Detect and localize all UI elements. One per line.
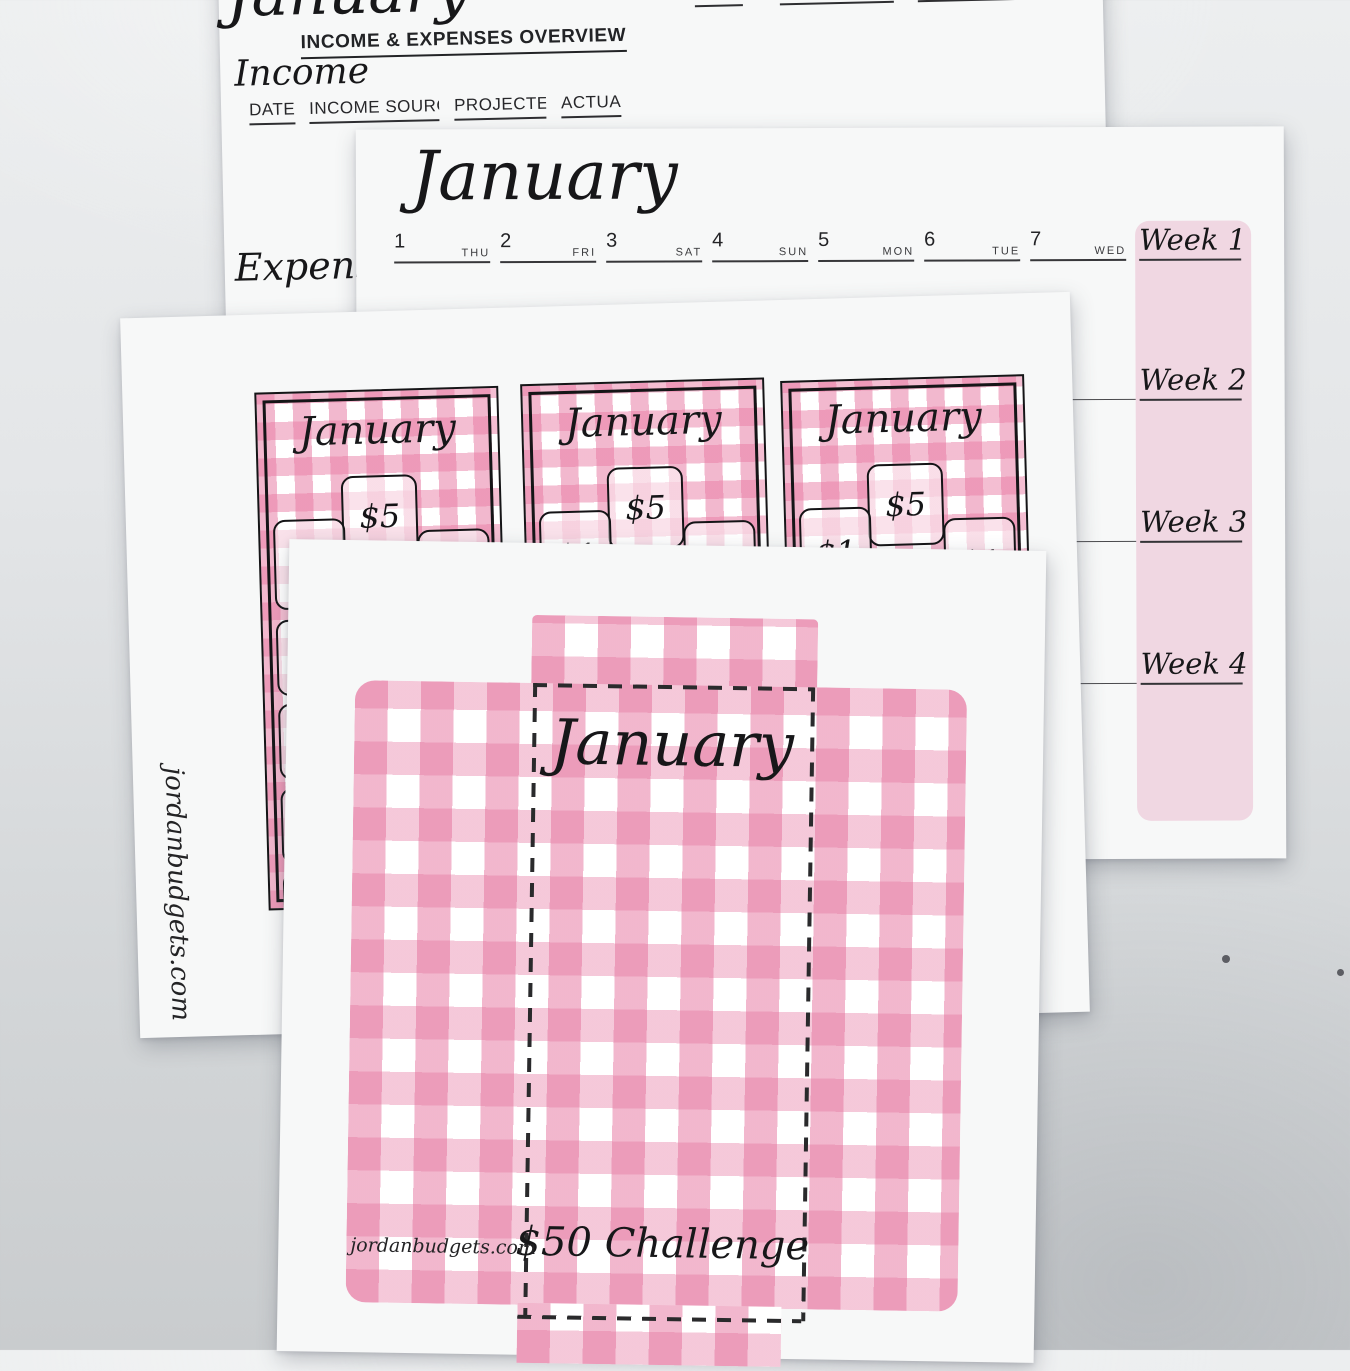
envelope-month-title: January [532, 705, 813, 782]
day-number: 7 [1030, 229, 1041, 249]
income-col-actual: ACTUAL [561, 89, 622, 118]
day-abbr: TUE [992, 245, 1020, 259]
day-abbr: MON [882, 246, 914, 260]
day-cell-1: 1 THU [394, 231, 490, 263]
income-label: Income [234, 51, 370, 95]
week-label-1: Week 1 [1139, 221, 1241, 261]
day-abbr: WED [1094, 245, 1126, 259]
day-abbr: SUN [779, 246, 808, 260]
expense-col-projected: PROJECTED [917, 0, 1028, 2]
backdrop-speck [1337, 969, 1344, 976]
card-month-title: January [523, 395, 764, 448]
day-number: 3 [606, 231, 617, 251]
income-col-source: INCOME SOURCE [309, 93, 440, 124]
day-number: 4 [712, 230, 723, 250]
day-abbr: THU [462, 247, 491, 261]
day-cell-2: 2 FRI [500, 231, 596, 263]
watermark-vertical: jordanbudgets.com [159, 767, 197, 1068]
challenge-label: $50 Challenge [512, 1219, 813, 1270]
week-label-3: Week 3 [1140, 503, 1242, 543]
day-cell-7: 7 WED [1030, 229, 1126, 261]
backdrop-speck [1222, 955, 1230, 963]
card-month-title: January [257, 404, 498, 457]
envelope-top-flap [531, 615, 818, 693]
calendar-month-title: January [411, 136, 678, 216]
day-number: 1 [394, 231, 405, 251]
day-number: 5 [818, 230, 829, 250]
card-month-title: January [783, 392, 1024, 445]
day-abbr: SAT [676, 246, 703, 260]
watermark: jordanbudgets.com [350, 1234, 536, 1259]
day-abbr: FRI [572, 247, 596, 261]
day-number: 6 [924, 230, 935, 250]
envelope-sheet: January $50 Challenge jordanbudgets.com [277, 539, 1047, 1363]
week-label-4: Week 4 [1141, 645, 1243, 685]
expense-col-bill: BILL [779, 0, 894, 5]
day-cell-5: 5 MON [818, 230, 914, 262]
income-col-date: DATE [249, 96, 296, 125]
amount-box-5: $5 [867, 462, 945, 546]
day-cell-4: 4 SUN [712, 230, 808, 262]
income-col-projected: PROJECTED [454, 91, 547, 121]
envelope-bottom-flap [517, 1303, 782, 1367]
day-cell-6: 6 TUE [924, 229, 1020, 261]
amount-box-5: $5 [606, 466, 684, 550]
day-cell-3: 3 SAT [606, 230, 702, 262]
photo-backdrop: { "overview_sheet": { "cropped_month_tit… [0, 0, 1350, 1350]
day-number: 2 [500, 231, 511, 251]
week-label-2: Week 2 [1140, 361, 1242, 401]
expense-col-date: DATE [694, 0, 743, 7]
